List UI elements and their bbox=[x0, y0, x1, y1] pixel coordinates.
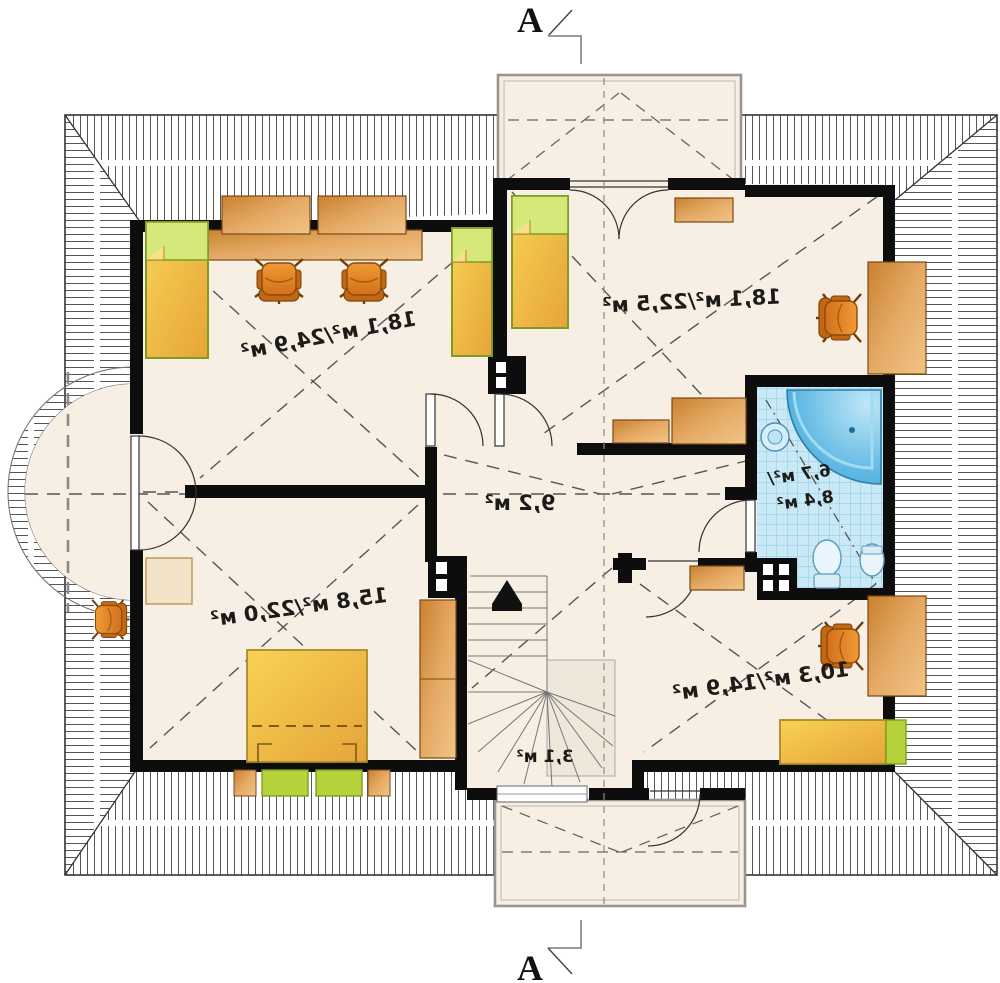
area-label-stairs: 3,1 м² bbox=[516, 747, 573, 767]
bay-window bbox=[8, 367, 133, 617]
bed-icon bbox=[146, 222, 208, 358]
double-bed-icon bbox=[247, 650, 367, 762]
dresser-icon bbox=[690, 566, 744, 590]
office-chair-icon bbox=[816, 294, 861, 342]
table-icon bbox=[146, 558, 192, 604]
terrace-bottom bbox=[495, 800, 745, 906]
floor-plan-page: 18,1 м²/24,9 м² 18,1 м²/22,5 м² 9,2 м² 6… bbox=[0, 0, 1000, 983]
section-mark-bottom: A bbox=[517, 920, 581, 983]
toilet-icon bbox=[813, 540, 841, 588]
bed-icon bbox=[512, 196, 568, 328]
chair-icon bbox=[92, 600, 129, 639]
bed-icon bbox=[780, 720, 906, 764]
section-letter-bottom: A bbox=[517, 948, 543, 983]
dresser-icon bbox=[675, 198, 733, 222]
office-chair-icon bbox=[340, 259, 388, 304]
sink-icon bbox=[761, 423, 789, 451]
roof-window-frame bbox=[368, 770, 390, 796]
area-label-hall: 9,2 м² bbox=[485, 491, 556, 515]
dresser-icon bbox=[672, 398, 746, 444]
desk-icon bbox=[868, 596, 926, 696]
roof-hatch-right bbox=[895, 115, 997, 875]
desk-icon bbox=[868, 262, 926, 374]
desk-icon bbox=[222, 196, 310, 234]
floor-plan: 18,1 м²/24,9 м² 18,1 м²/22,5 м² 9,2 м² 6… bbox=[0, 0, 1000, 983]
bed-icon bbox=[452, 228, 492, 356]
dormer-top bbox=[498, 75, 741, 187]
roof-window-icon bbox=[316, 770, 362, 796]
office-chair-icon bbox=[255, 259, 303, 304]
dresser-icon bbox=[613, 420, 669, 443]
desk-icon bbox=[318, 196, 406, 234]
stair-window bbox=[497, 786, 587, 802]
section-mark-top: A bbox=[517, 0, 581, 64]
bidet-icon bbox=[860, 544, 884, 576]
section-letter-top: A bbox=[517, 0, 543, 40]
roof-window-icon bbox=[262, 770, 308, 796]
roof-window-frame bbox=[234, 770, 256, 796]
